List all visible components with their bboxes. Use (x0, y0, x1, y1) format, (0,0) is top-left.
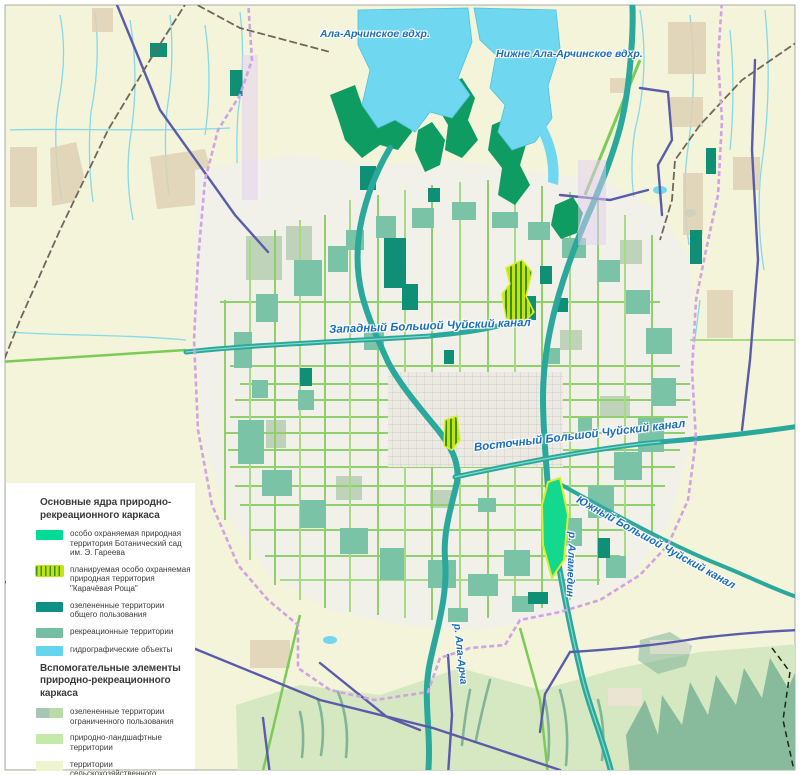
legend-item: природно-ландшафтные территории (36, 733, 195, 752)
legend-item: планируемая особо охраняемая природная т… (36, 565, 195, 594)
legend-item: особо охраняемая природная территория Бо… (36, 529, 195, 558)
swatch-public-green (36, 602, 63, 612)
city-center-grid (388, 372, 563, 467)
legend-item: озелененные территории общего пользовани… (36, 601, 195, 620)
swatch-limited-green (36, 708, 63, 718)
legend-item: рекреационные территории (36, 627, 195, 638)
legend-section-title-cores: Основные ядра природно-рекреационного ка… (40, 497, 198, 522)
swatch-hydrographic (36, 646, 63, 656)
swatch-agricultural (36, 761, 63, 771)
city-plan-map: Ала-Арчинское вдхр. Нижне Ала-Арчинское … (0, 0, 800, 775)
map-legend: Основные ядра природно-рекреационного ка… (6, 483, 195, 769)
swatch-recreational (36, 628, 63, 638)
legend-item: гидрографические объекты (36, 645, 195, 656)
legend-item: озелененные территории ограниченного пол… (36, 707, 195, 726)
swatch-natural-landscape (36, 734, 63, 744)
swatch-protected-garden (36, 530, 63, 540)
legend-item: территории сельскохозяйственного использ… (36, 760, 195, 775)
legend-section-title-auxiliary: Вспомогательные элементы природно-рекреа… (40, 663, 198, 701)
swatch-planned-protected (36, 566, 63, 576)
